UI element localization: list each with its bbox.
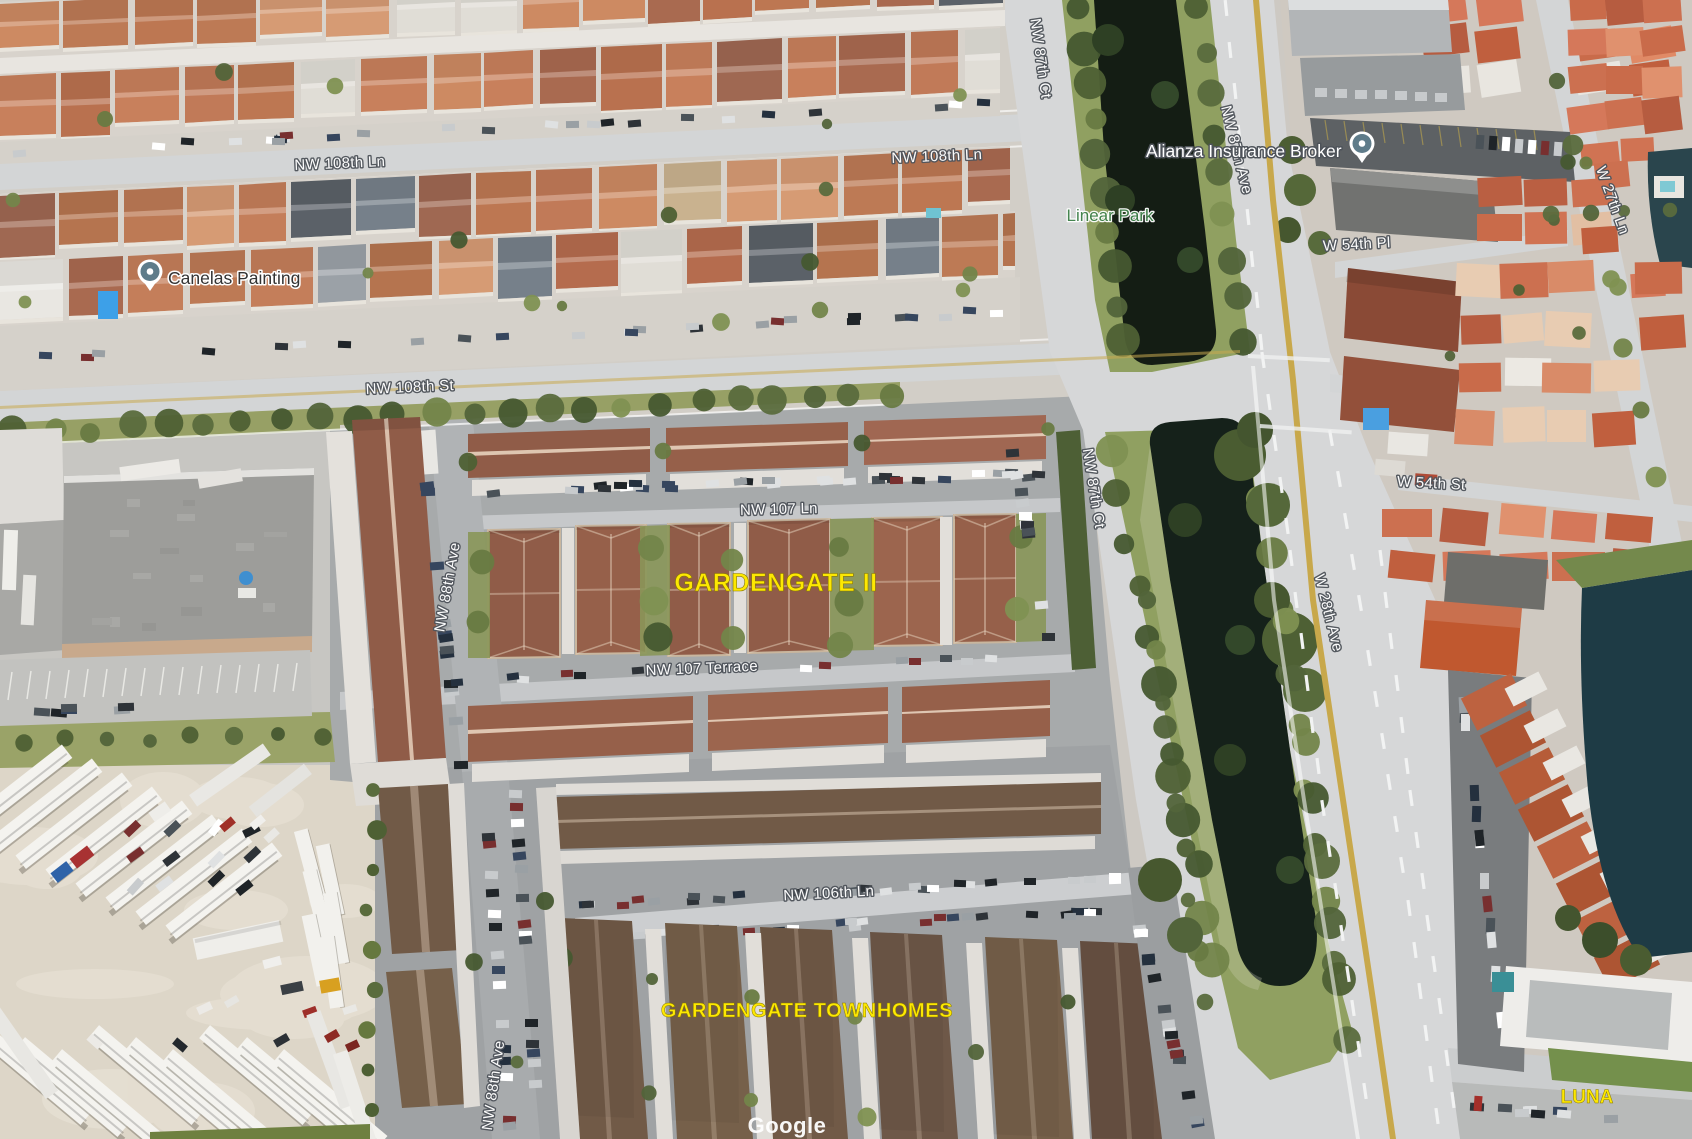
svg-text:Canelas Painting: Canelas Painting: [168, 268, 300, 288]
svg-text:LUNA: LUNA: [1561, 1087, 1614, 1108]
svg-text:Google: Google: [748, 1113, 827, 1138]
svg-text:GARDENGATE TOWNHOMES: GARDENGATE TOWNHOMES: [661, 1000, 953, 1022]
svg-text:NW 107 Ln: NW 107 Ln: [740, 500, 818, 519]
svg-text:Linear Park: Linear Park: [1067, 206, 1154, 225]
svg-text:GARDENGATE II: GARDENGATE II: [674, 569, 877, 597]
svg-text:Alianza Insurance Broker: Alianza Insurance Broker: [1146, 141, 1342, 161]
svg-text:W 54th St: W 54th St: [1397, 473, 1467, 494]
svg-text:W 54th Pl: W 54th Pl: [1322, 234, 1391, 255]
